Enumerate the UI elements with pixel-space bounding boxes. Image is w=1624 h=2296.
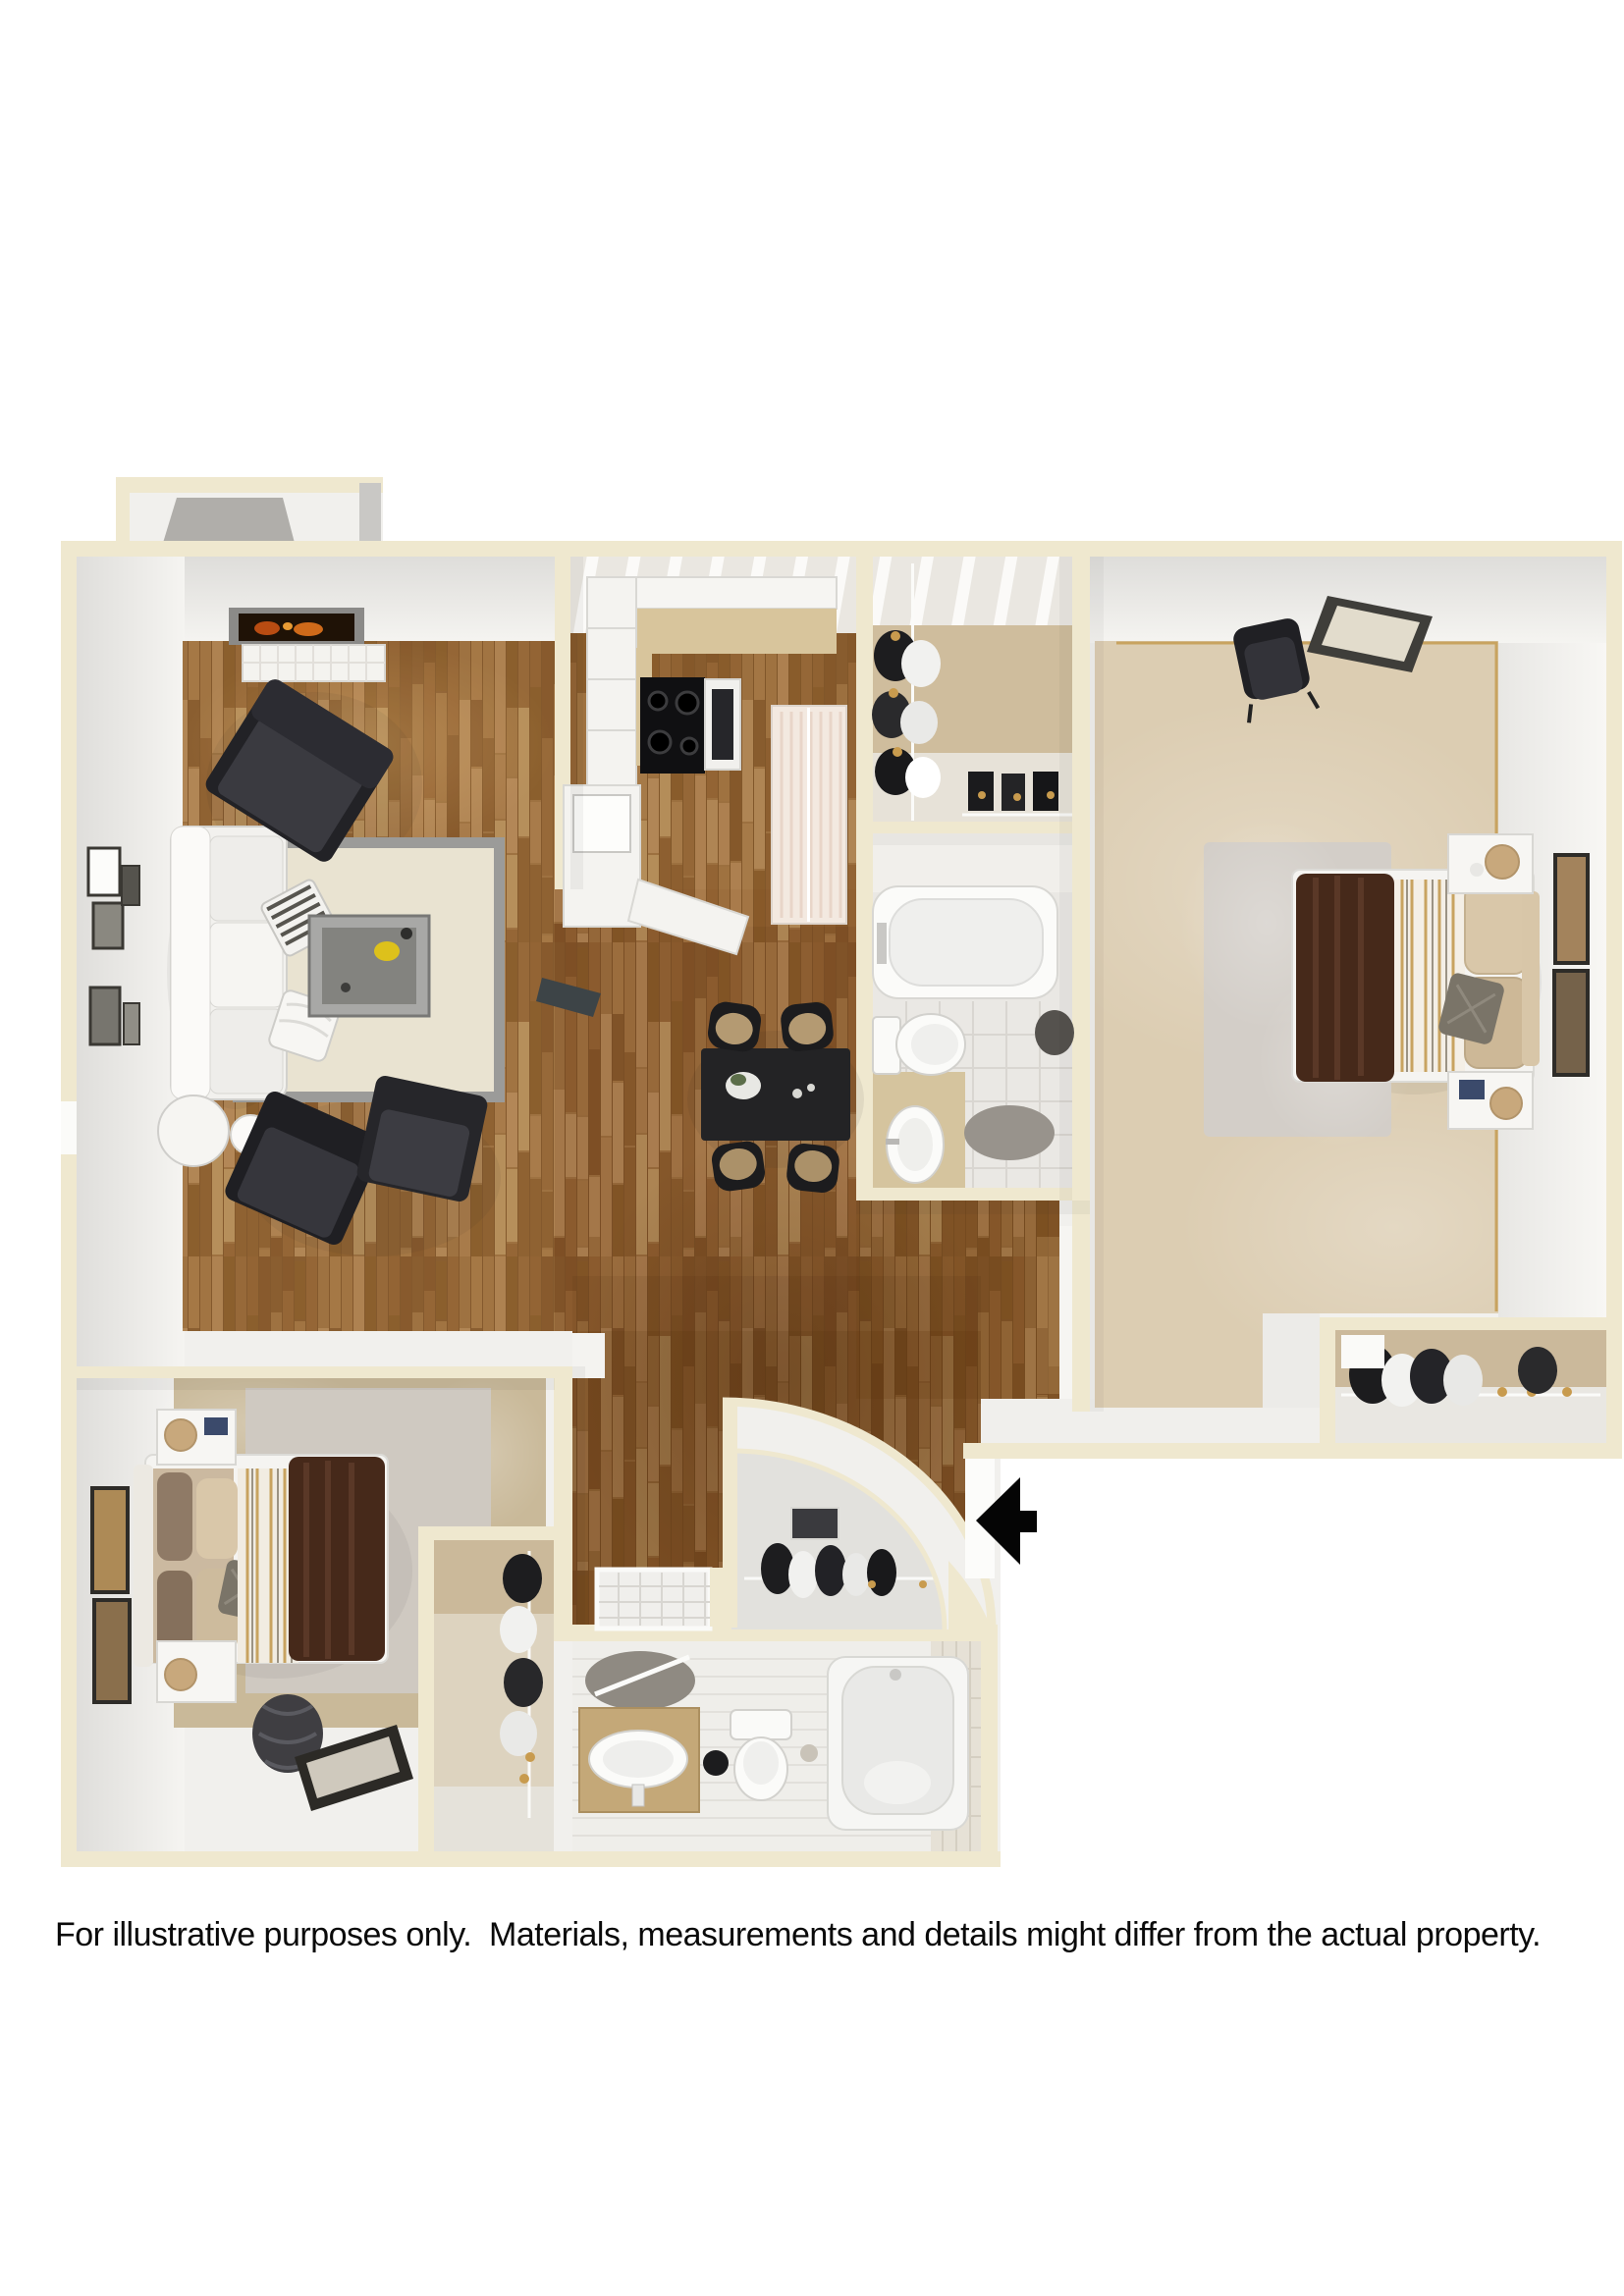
svg-text:For illustrative purposes only: For illustrative purposes only. Material… [55, 1916, 1541, 1953]
